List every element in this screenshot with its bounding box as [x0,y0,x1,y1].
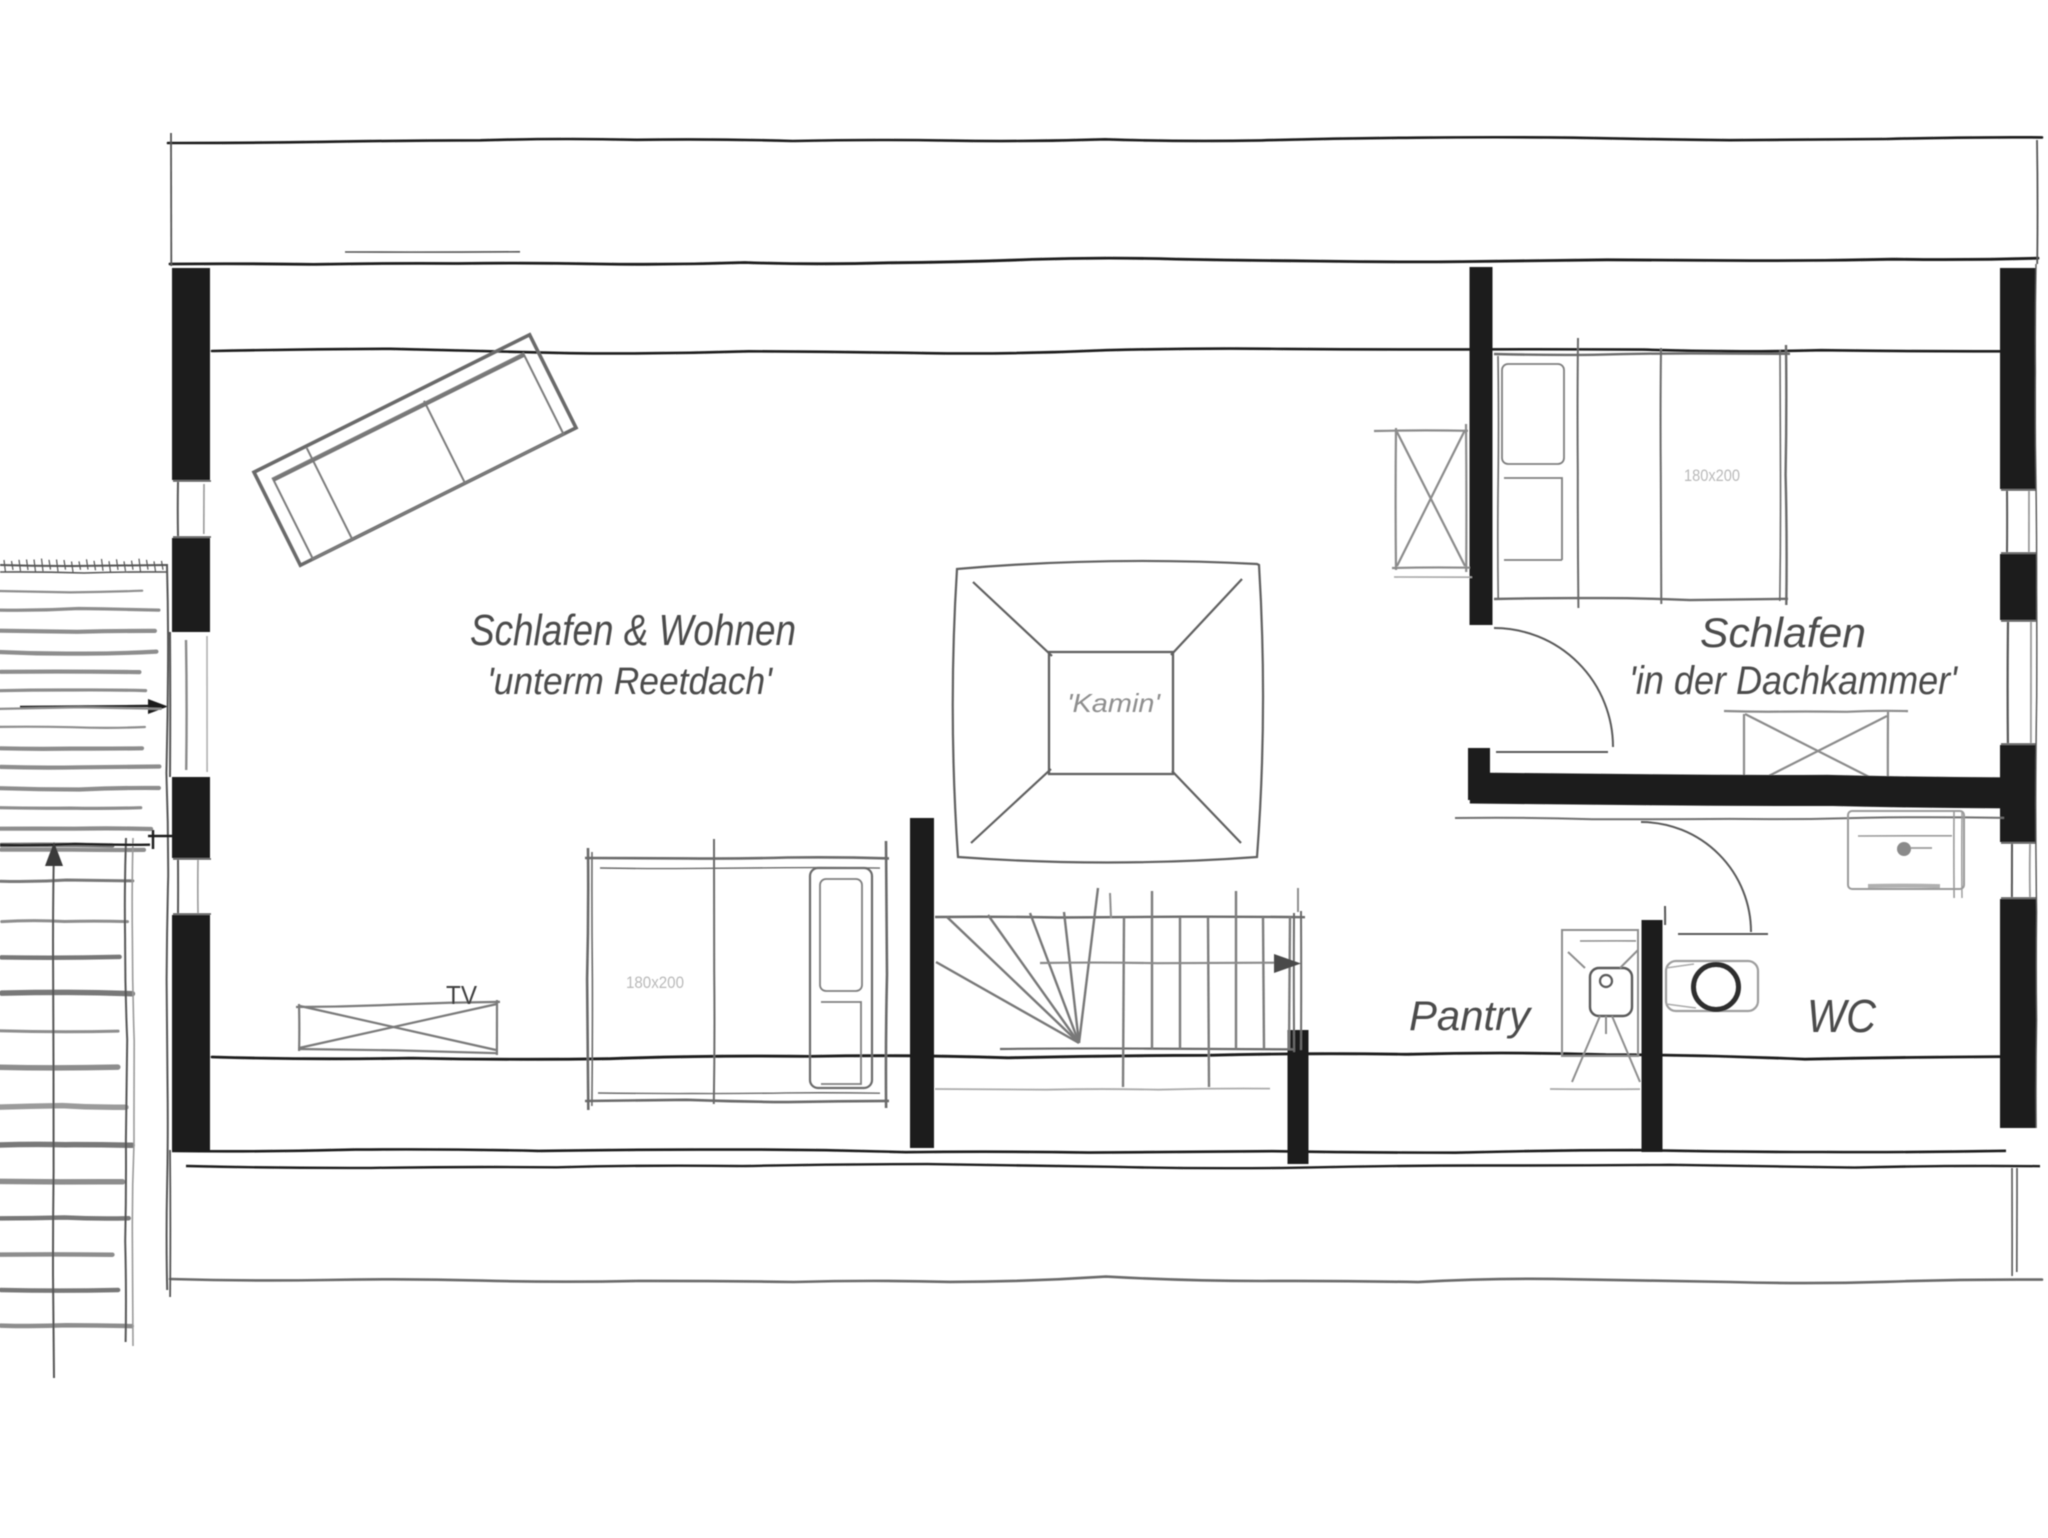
svg-text:TV: TV [446,980,478,1010]
svg-text:WC: WC [1807,990,1877,1042]
svg-text:Schlafen: Schlafen [1700,609,1866,656]
svg-text:Schlafen & Wohnen: Schlafen & Wohnen [470,606,796,655]
svg-text:'unterm Reetdach': 'unterm Reetdach' [487,661,774,703]
svg-text:'Kamin': 'Kamin' [1067,688,1161,718]
svg-text:Pantry: Pantry [1409,992,1533,1039]
svg-text:'in der Dachkammer': 'in der Dachkammer' [1629,659,1958,703]
svg-text:180x200: 180x200 [626,973,684,992]
svg-text:180x200: 180x200 [1684,466,1740,485]
